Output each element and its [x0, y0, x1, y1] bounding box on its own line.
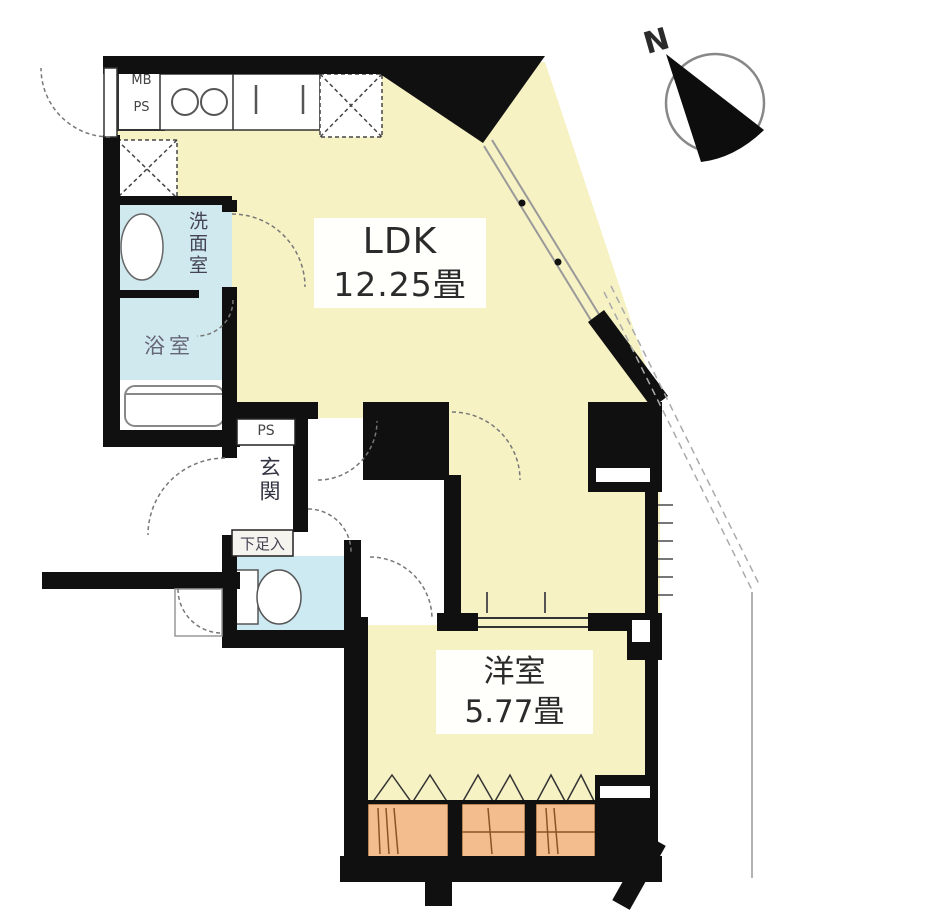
bedroom-name: 洋室 [484, 652, 546, 692]
closet-box [536, 804, 595, 858]
entry-nook [175, 589, 222, 636]
ps-entrance-label: PS [238, 423, 294, 439]
floorplan-canvas: LDK 12.25畳 洋室 5.77畳 洗面室 浴室 玄関 下足入 MB PS … [0, 0, 925, 916]
ldk-name: LDK [363, 220, 437, 264]
entrance-label: 玄関 [254, 456, 284, 504]
toilet-bowl-icon [257, 570, 301, 624]
bedroom-label: 洋室 5.77畳 [436, 650, 593, 734]
shoe-cabinet-label: 下足入 [233, 533, 292, 554]
closet-box [462, 804, 525, 858]
compass-needle-icon [666, 54, 764, 162]
floorplan-drawing [0, 0, 925, 916]
door-arc [41, 68, 110, 137]
door-leaf [104, 68, 117, 137]
kitchen-counter [160, 74, 320, 130]
door-arc [370, 557, 432, 619]
ps-top-label: PS [123, 100, 160, 116]
washbasin-icon [121, 214, 163, 280]
compass [666, 54, 764, 162]
ldk-size: 12.25畳 [333, 264, 466, 306]
refrigerator-space-icon [320, 74, 382, 137]
washroom-label: 洗面室 [184, 211, 211, 277]
window-slit [632, 620, 650, 642]
bedroom-size: 5.77畳 [464, 692, 564, 732]
mb-label: MB [123, 73, 160, 89]
bathtub [117, 380, 232, 432]
ldk-label: LDK 12.25畳 [314, 218, 486, 308]
upper-cabinet-icon [117, 140, 177, 198]
window-slit [596, 468, 650, 482]
wall-ticks [658, 505, 673, 595]
window-slit [600, 786, 650, 798]
meter-box-label: MB PS [123, 73, 160, 116]
door-arc [148, 458, 225, 535]
bathroom-label: 浴室 [144, 330, 194, 360]
